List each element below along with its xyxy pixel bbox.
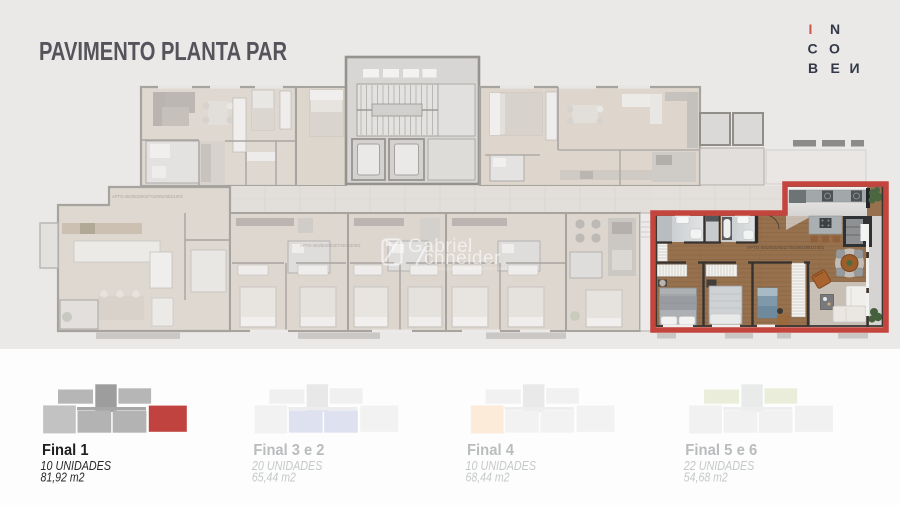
svg-text:APTO-403/503/603/703/803/903: APTO-403/503/603/703/803/903 xyxy=(300,243,361,248)
svg-text:И: И xyxy=(850,60,860,76)
svg-text:I: I xyxy=(809,21,813,37)
svg-text:N: N xyxy=(830,21,840,37)
svg-text:Final 3 e 2: Final 3 e 2 xyxy=(253,442,324,459)
svg-text:C: C xyxy=(808,41,818,57)
svg-text:APTO-402/502/602/702/802/902/1: APTO-402/502/602/702/802/902/1002 xyxy=(112,194,184,199)
svg-text:Final 1: Final 1 xyxy=(42,442,89,459)
svg-text:PAVIMENTO PLANTA PAR: PAVIMENTO PLANTA PAR xyxy=(39,36,287,66)
svg-text:E: E xyxy=(831,60,840,76)
svg-text:81,92 m2: 81,92 m2 xyxy=(41,470,86,485)
svg-text:ARQUITETURA E INTERIORES: ARQUITETURA E INTERIORES xyxy=(438,266,508,271)
svg-text:65,44 m2: 65,44 m2 xyxy=(252,470,297,485)
svg-text:O: O xyxy=(829,41,840,57)
svg-text:68,44 m2: 68,44 m2 xyxy=(466,470,511,485)
svg-text:54,68 m2: 54,68 m2 xyxy=(684,470,729,485)
svg-text:APTO 401/501/601/701/801/901/1: APTO 401/501/601/701/801/901/1001 xyxy=(747,245,825,250)
svg-text:Final 4: Final 4 xyxy=(467,442,514,459)
svg-text:Final 5 e 6: Final 5 e 6 xyxy=(685,442,757,459)
svg-text:B: B xyxy=(808,60,818,76)
